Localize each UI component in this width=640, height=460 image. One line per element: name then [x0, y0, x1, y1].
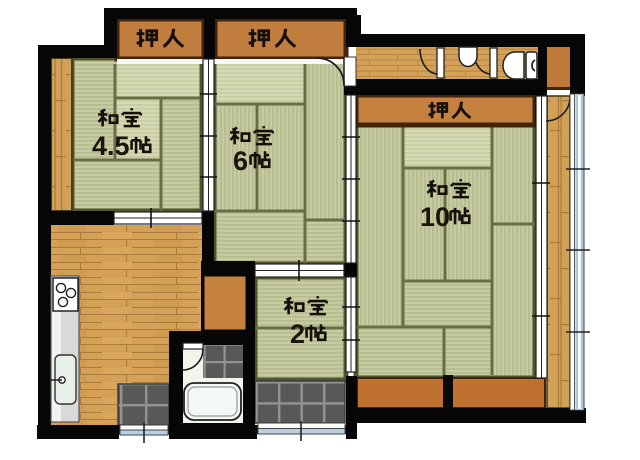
svg-text:6: 6	[233, 146, 248, 176]
svg-text:4.5: 4.5	[92, 131, 130, 161]
svg-text:2: 2	[290, 319, 305, 349]
svg-text:10: 10	[420, 202, 450, 232]
